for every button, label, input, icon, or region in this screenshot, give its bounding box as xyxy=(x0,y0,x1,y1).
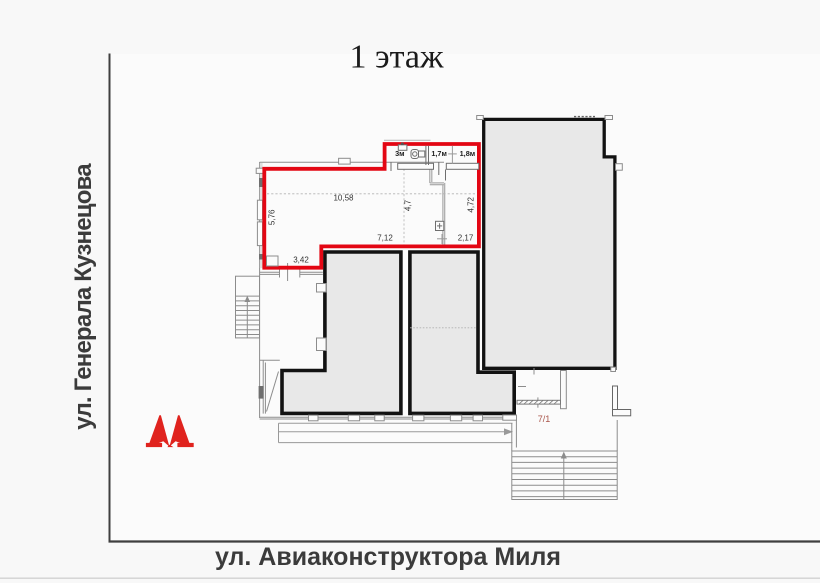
svg-text:7/1: 7/1 xyxy=(538,414,551,424)
svg-text:1,8м: 1,8м xyxy=(460,149,476,158)
svg-text:4,7: 4,7 xyxy=(404,199,413,211)
svg-text:7,12: 7,12 xyxy=(377,234,393,243)
svg-text:ул. Генерала Кузнецова: ул. Генерала Кузнецова xyxy=(70,163,97,430)
svg-text:ул. Авиаконструктора Миля: ул. Авиаконструктора Миля xyxy=(215,543,561,571)
svg-text:1 этаж: 1 этаж xyxy=(350,39,444,76)
svg-text:2,17: 2,17 xyxy=(458,234,474,243)
svg-text:3м: 3м xyxy=(395,149,404,158)
svg-text:10,58: 10,58 xyxy=(333,194,354,203)
svg-text:3,42: 3,42 xyxy=(293,256,309,265)
svg-text:5,76: 5,76 xyxy=(267,209,276,225)
svg-text:4,72: 4,72 xyxy=(466,196,475,212)
svg-text:1,7м: 1,7м xyxy=(431,149,447,158)
